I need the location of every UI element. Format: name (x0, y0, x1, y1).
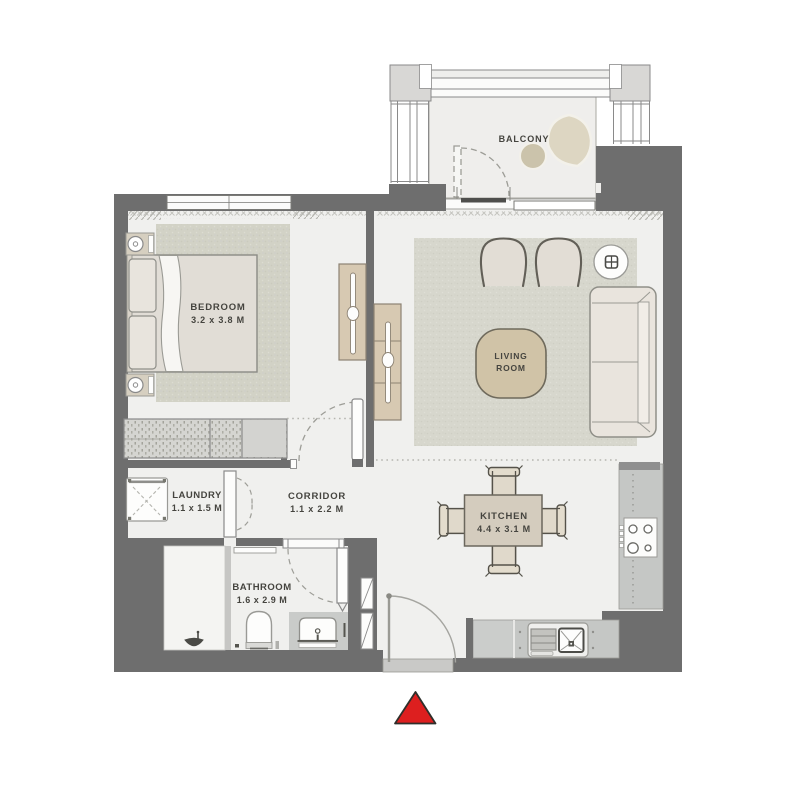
svg-text:1.1 x 1.5 M: 1.1 x 1.5 M (172, 503, 223, 513)
svg-text:1.6 x 2.9 M: 1.6 x 2.9 M (237, 595, 288, 605)
svg-text:CORRIDOR: CORRIDOR (288, 491, 346, 502)
svg-text:LAUNDRY: LAUNDRY (172, 490, 222, 501)
svg-text:ROOM: ROOM (496, 363, 526, 373)
svg-text:4.4 x 3.1 M: 4.4 x 3.1 M (477, 524, 531, 534)
svg-text:BALCONY: BALCONY (499, 134, 550, 144)
svg-text:KITCHEN: KITCHEN (480, 511, 528, 522)
svg-text:BEDROOM: BEDROOM (190, 302, 245, 313)
svg-text:LIVING: LIVING (494, 351, 527, 361)
svg-text:3.2 x 3.8 M: 3.2 x 3.8 M (191, 315, 245, 325)
svg-text:BATHROOM: BATHROOM (232, 582, 291, 593)
svg-text:1.1 x 2.2 M: 1.1 x 2.2 M (290, 504, 344, 514)
